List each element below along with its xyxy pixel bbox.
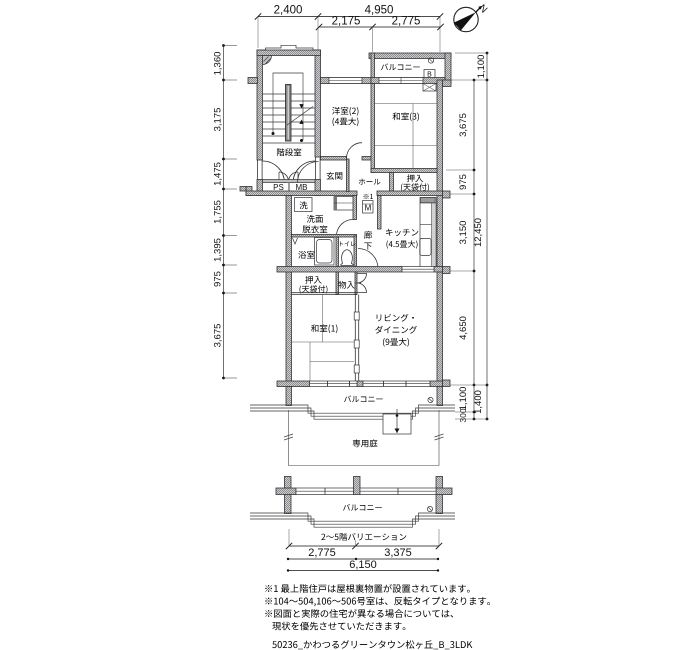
svg-text:1,755: 1,755 — [213, 200, 224, 224]
svg-text:12,450: 12,450 — [473, 218, 484, 247]
svg-text:M: M — [365, 204, 372, 213]
svg-text:3,375: 3,375 — [384, 547, 412, 559]
svg-text:300: 300 — [458, 408, 468, 422]
svg-text:4,650: 4,650 — [458, 316, 469, 340]
svg-text:975: 975 — [458, 174, 469, 190]
svg-text:3,675: 3,675 — [458, 113, 469, 137]
svg-text:B: B — [427, 71, 432, 78]
svg-text:1,475: 1,475 — [213, 162, 224, 186]
svg-text:4,950: 4,950 — [365, 5, 394, 17]
svg-text:3,675: 3,675 — [213, 324, 224, 348]
svg-text:2,400: 2,400 — [274, 5, 303, 17]
svg-text:N: N — [476, 3, 489, 16]
svg-text:6,150: 6,150 — [349, 559, 377, 571]
svg-text:975: 975 — [213, 271, 224, 287]
svg-text:1,400: 1,400 — [473, 390, 484, 414]
svg-text:1,395: 1,395 — [213, 238, 224, 262]
svg-text:3,175: 3,175 — [213, 108, 224, 132]
svg-text:2,775: 2,775 — [308, 547, 336, 559]
svg-text:2,775: 2,775 — [392, 16, 421, 28]
svg-text:2,175: 2,175 — [332, 16, 361, 28]
svg-text:1,100: 1,100 — [476, 55, 487, 79]
svg-text:3,150: 3,150 — [458, 221, 469, 245]
svg-text:1,100: 1,100 — [458, 387, 469, 411]
svg-text:1,360: 1,360 — [213, 52, 224, 76]
